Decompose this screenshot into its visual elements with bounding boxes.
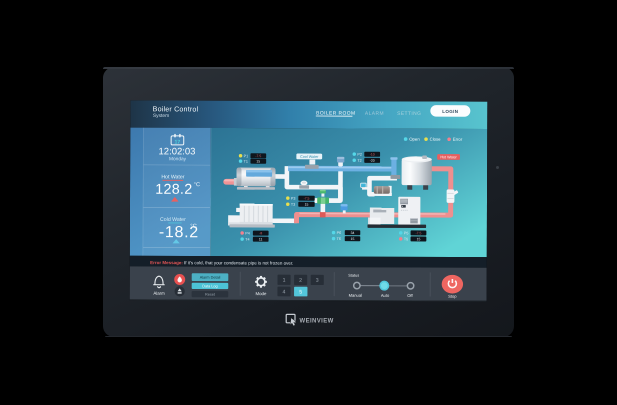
svg-text:1: 1 [283, 278, 286, 284]
svg-text:P5: P5 [404, 231, 409, 235]
svg-text:Cool Water: Cool Water [300, 155, 319, 159]
svg-text:Boiler Control: Boiler Control [153, 105, 199, 113]
svg-text:Error Message: If it's cold, t: Error Message: If it's cold, that your c… [150, 260, 293, 266]
svg-text:128.2: 128.2 [155, 182, 192, 198]
svg-text:Off: Off [407, 293, 413, 298]
svg-text:ALARM: ALARM [365, 111, 384, 117]
svg-text:Mode: Mode [255, 291, 267, 296]
svg-text:Status: Status [348, 273, 359, 278]
svg-text:T4: T4 [245, 238, 249, 242]
svg-text:-7.5: -7.5 [416, 231, 422, 235]
svg-text:-8: -8 [259, 232, 262, 236]
svg-text:4: 4 [283, 290, 286, 296]
svg-text:12:02:03: 12:02:03 [159, 147, 196, 158]
svg-text:P1: P1 [244, 154, 249, 158]
svg-text:-10: -10 [370, 153, 375, 157]
svg-text:Hot Water: Hot Water [440, 155, 457, 159]
svg-text:°C: °C [194, 182, 200, 188]
svg-text:Stop: Stop [448, 294, 457, 299]
svg-text:Open: Open [409, 137, 420, 142]
svg-text:P2: P2 [357, 153, 362, 157]
svg-text:°C: °C [190, 224, 197, 230]
svg-text:Manual: Manual [349, 293, 362, 298]
svg-text:Alarm: Alarm [153, 291, 165, 296]
svg-text:T2: T2 [357, 159, 361, 163]
svg-text:T1: T1 [244, 160, 248, 164]
svg-text:15: 15 [351, 237, 355, 241]
svg-text:5: 5 [299, 290, 302, 296]
svg-text:15: 15 [256, 160, 260, 164]
svg-text:P3: P3 [291, 197, 296, 201]
svg-text:T5: T5 [404, 237, 408, 241]
svg-text:Data Log: Data Log [202, 285, 217, 289]
svg-text:System: System [153, 113, 169, 119]
svg-text:Monday: Monday [169, 156, 187, 162]
svg-text:-7.5: -7.5 [304, 197, 310, 201]
svg-text:SETTING: SETTING [397, 111, 421, 117]
svg-text:T6: T6 [337, 237, 341, 241]
svg-text:15: 15 [305, 203, 309, 207]
svg-text:-20: -20 [370, 159, 375, 163]
svg-text:17: 17 [175, 140, 181, 146]
svg-text:Hot Water: Hot Water [161, 175, 184, 181]
svg-text:Error: Error [453, 137, 463, 142]
svg-text:P4: P4 [245, 232, 250, 236]
svg-text:3: 3 [316, 278, 319, 284]
svg-text:LOGIN: LOGIN [442, 109, 458, 114]
svg-text:P6: P6 [337, 231, 342, 235]
svg-text:WEINVIEW: WEINVIEW [300, 318, 334, 324]
svg-text:Alarm Detail: Alarm Detail [200, 276, 221, 280]
svg-text:2: 2 [299, 278, 302, 284]
svg-text:34: 34 [351, 231, 355, 235]
svg-text:Close: Close [430, 137, 442, 142]
svg-text:Reset: Reset [205, 293, 216, 297]
svg-text:11: 11 [259, 238, 263, 242]
svg-text:-7.5: -7.5 [255, 154, 261, 158]
svg-text:T3: T3 [291, 203, 295, 207]
svg-text:Auto: Auto [381, 293, 390, 298]
svg-text:15: 15 [417, 237, 421, 241]
svg-text:Cold Water: Cold Water [160, 217, 186, 223]
